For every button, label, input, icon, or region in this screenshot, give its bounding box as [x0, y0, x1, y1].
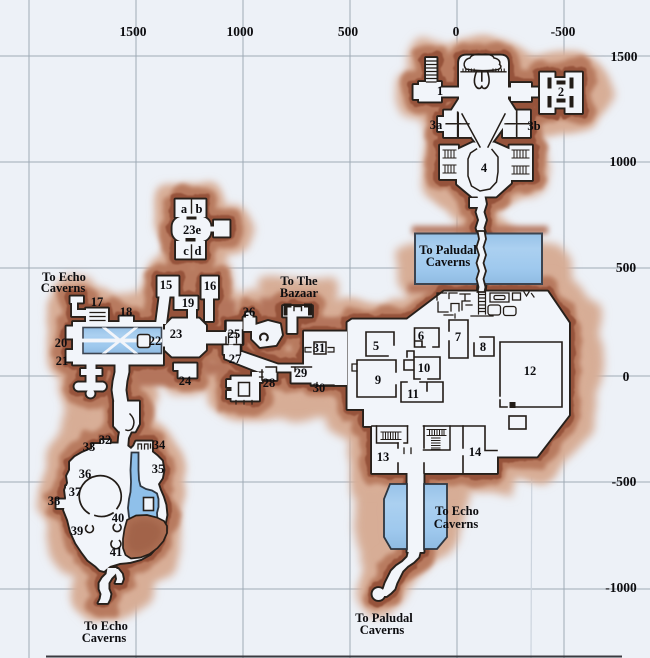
svg-text:26: 26: [243, 305, 256, 319]
svg-text:27: 27: [229, 352, 242, 366]
svg-text:0: 0: [453, 24, 460, 39]
svg-text:23e: 23e: [183, 223, 202, 237]
svg-text:9: 9: [375, 373, 381, 387]
svg-text:33: 33: [83, 440, 96, 454]
svg-text:17: 17: [91, 295, 104, 309]
svg-text:d: d: [195, 244, 202, 258]
svg-text:c: c: [183, 244, 189, 258]
svg-text:32: 32: [99, 433, 112, 447]
svg-text:10: 10: [418, 361, 431, 375]
svg-text:34: 34: [153, 438, 166, 452]
svg-text:35: 35: [152, 462, 165, 476]
svg-text:1000: 1000: [227, 24, 254, 39]
svg-text:18: 18: [120, 305, 133, 319]
svg-text:Caverns: Caverns: [426, 255, 471, 269]
svg-text:20: 20: [55, 336, 68, 350]
svg-text:Caverns: Caverns: [82, 631, 127, 645]
svg-text:Caverns: Caverns: [41, 281, 86, 295]
svg-text:3b: 3b: [527, 119, 540, 133]
svg-text:500: 500: [338, 24, 359, 39]
svg-text:-500: -500: [551, 24, 576, 39]
svg-text:11: 11: [407, 387, 419, 401]
svg-text:16: 16: [204, 279, 217, 293]
svg-text:500: 500: [616, 260, 637, 275]
svg-text:-500: -500: [612, 474, 637, 489]
svg-text:40: 40: [112, 511, 125, 525]
svg-text:12: 12: [524, 364, 537, 378]
svg-text:-1000: -1000: [605, 580, 637, 595]
svg-text:a: a: [181, 202, 188, 216]
svg-text:0: 0: [623, 369, 630, 384]
svg-text:Bazaar: Bazaar: [280, 286, 319, 300]
svg-text:15: 15: [160, 278, 173, 292]
svg-text:38: 38: [48, 494, 61, 508]
svg-text:25: 25: [228, 327, 241, 341]
svg-text:1: 1: [437, 84, 443, 98]
svg-text:1000: 1000: [610, 154, 637, 169]
svg-text:5: 5: [373, 339, 379, 353]
svg-text:Caverns: Caverns: [360, 623, 405, 637]
svg-text:1500: 1500: [611, 49, 638, 64]
svg-text:39: 39: [71, 524, 84, 538]
svg-text:37: 37: [69, 485, 82, 499]
svg-text:21: 21: [56, 354, 69, 368]
svg-text:4: 4: [481, 161, 488, 175]
svg-text:6: 6: [418, 329, 424, 343]
svg-text:22: 22: [149, 334, 162, 348]
svg-text:13: 13: [377, 450, 390, 464]
svg-text:28: 28: [263, 376, 276, 390]
svg-text:36: 36: [79, 467, 92, 481]
svg-text:8: 8: [480, 340, 486, 354]
svg-text:24: 24: [179, 374, 192, 388]
svg-text:31: 31: [313, 341, 326, 355]
svg-text:b: b: [196, 202, 203, 216]
svg-text:29: 29: [295, 366, 308, 380]
svg-text:Caverns: Caverns: [434, 517, 479, 531]
svg-text:1500: 1500: [120, 24, 147, 39]
svg-text:To Echo: To Echo: [435, 504, 479, 518]
svg-text:3a: 3a: [430, 118, 443, 132]
svg-text:19: 19: [182, 296, 195, 310]
svg-text:30: 30: [313, 381, 326, 395]
svg-text:7: 7: [455, 330, 461, 344]
svg-text:2: 2: [558, 85, 564, 99]
svg-text:14: 14: [469, 445, 482, 459]
svg-text:23: 23: [170, 327, 183, 341]
svg-text:41: 41: [110, 545, 123, 559]
